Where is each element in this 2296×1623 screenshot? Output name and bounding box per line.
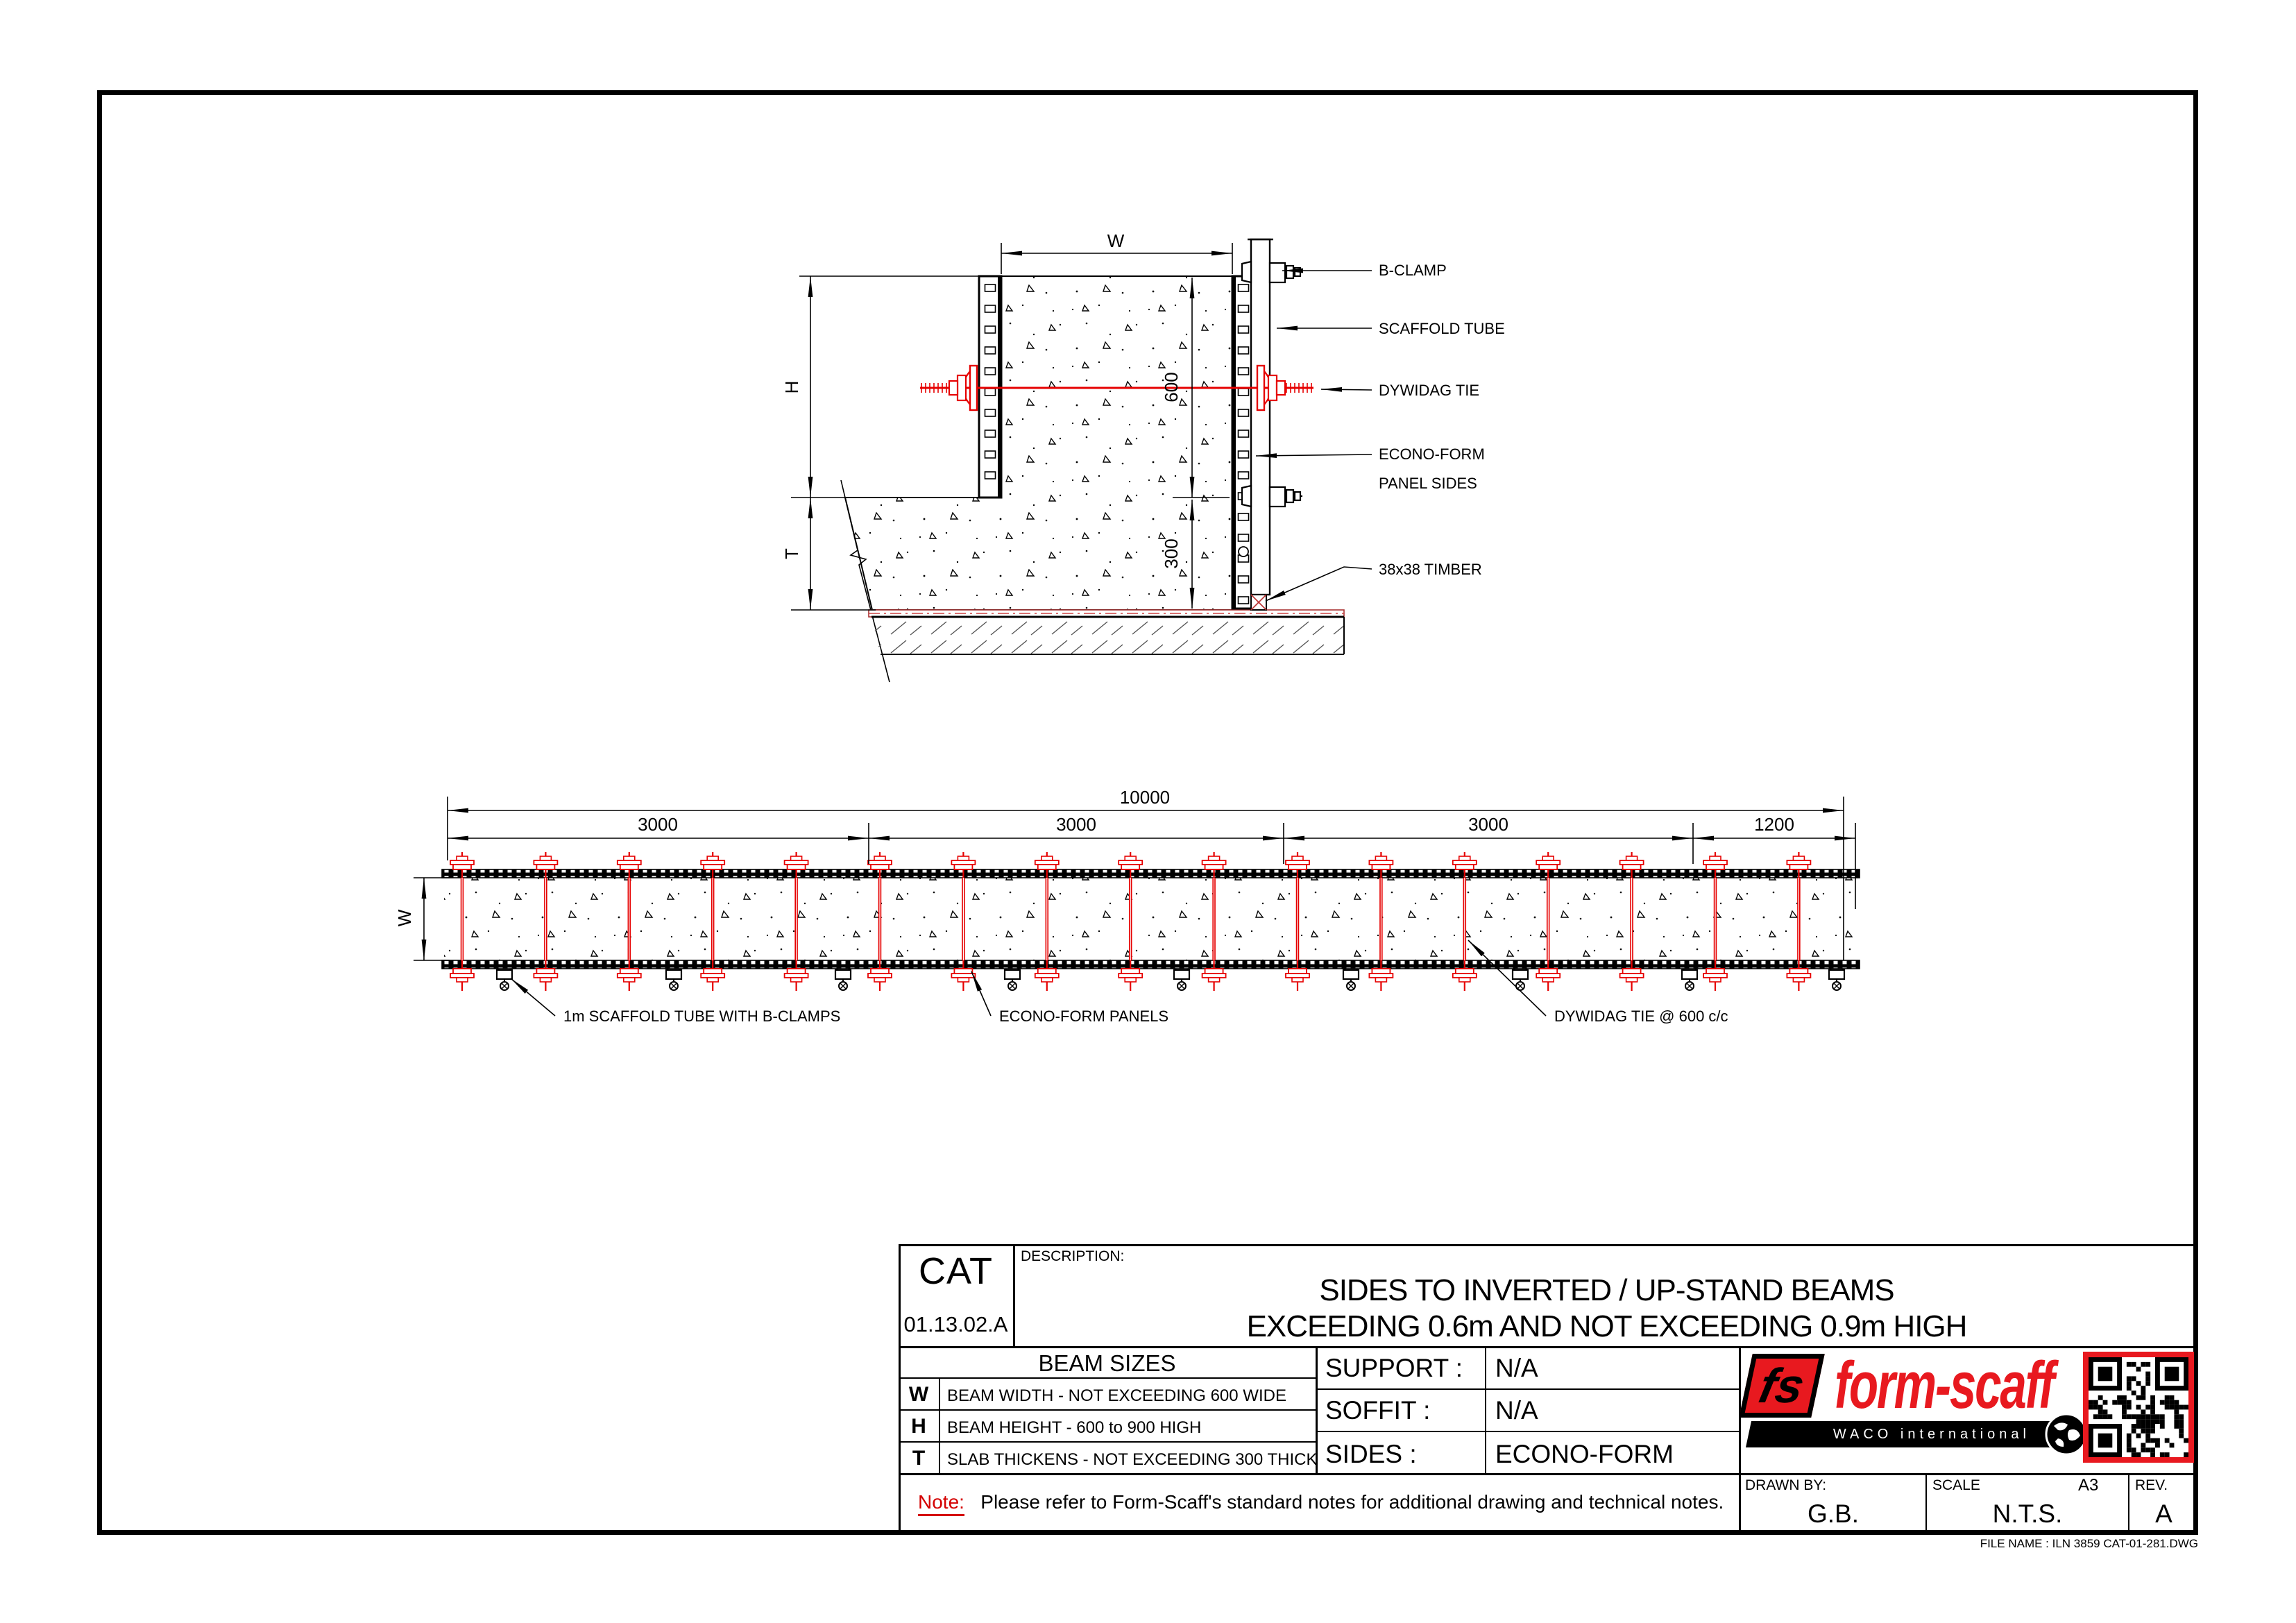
dim-t: T — [781, 548, 802, 559]
dim-w: W — [1107, 230, 1125, 251]
note-row: Note: Please refer to Form-Scaff's stand… — [918, 1491, 1724, 1513]
cat-label: CAT — [899, 1250, 1013, 1293]
beam-sizes-desc-w: BEAM WIDTH - NOT EXCEEDING 600 WIDE — [947, 1386, 1286, 1406]
file-name: FILE NAME : ILN 3859 CAT-01-281.DWG — [1873, 1537, 2198, 1551]
label-dywidag-tie: DYWIDAG TIE — [1379, 382, 1479, 399]
sheet-size: A3 — [2078, 1476, 2098, 1495]
description-line1: SIDES TO INVERTED / UP-STAND BEAMS — [1015, 1273, 2198, 1308]
dim-300: 300 — [1161, 538, 1182, 568]
qr-code — [2083, 1352, 2194, 1463]
dim-3000-3: 3000 — [1468, 814, 1508, 835]
description-label: DESCRIPTION: — [1021, 1248, 1124, 1265]
scale-label: SCALE — [1932, 1477, 1980, 1494]
dim-600: 600 — [1161, 372, 1182, 402]
ground-hatch — [871, 617, 1344, 654]
soffit-label: SOFFIT : — [1325, 1396, 1430, 1425]
dim-1200: 1200 — [1754, 814, 1794, 835]
note-text: Please refer to Form-Scaff's standard no… — [980, 1491, 1724, 1513]
monogram-text: fs — [1755, 1361, 1808, 1410]
plan-concrete — [444, 878, 1860, 960]
label-b-clamp: B-CLAMP — [1379, 262, 1447, 279]
b-clamp-bottom — [1242, 486, 1302, 507]
label-timber: 38x38 TIMBER — [1379, 561, 1482, 578]
label-plan-tie: DYWIDAG TIE @ 600 c/c — [1554, 1008, 1728, 1025]
label-plan-scaffold: 1m SCAFFOLD TUBE WITH B-CLAMPS — [563, 1008, 840, 1025]
cat-number: 01.13.02.A — [899, 1312, 1013, 1337]
support-value: N/A — [1495, 1354, 1538, 1383]
dim-10000: 10000 — [1120, 787, 1170, 808]
dim-3000-2: 3000 — [1056, 814, 1096, 835]
beam-sizes-desc-h: BEAM HEIGHT - 600 to 900 HIGH — [947, 1418, 1201, 1438]
dim-plan-w: W — [394, 909, 415, 926]
drawn-by-label: DRAWN BY: — [1745, 1477, 1826, 1494]
plan-b-clamps — [497, 969, 1844, 990]
rev-value: A — [2129, 1499, 2198, 1529]
beam-sizes-key-t: T — [899, 1447, 939, 1470]
b-clamp-top — [1242, 262, 1302, 282]
description-line2: EXCEEDING 0.6m AND NOT EXCEEDING 0.9m HI… — [1015, 1309, 2198, 1344]
label-plan-panels: ECONO-FORM PANELS — [999, 1008, 1168, 1025]
form-scaff-wordmark: form-scaff — [1835, 1348, 2075, 1424]
soffit-value: N/A — [1495, 1396, 1538, 1425]
dim-3000-1: 3000 — [638, 814, 678, 835]
note-label: Note: — [918, 1491, 964, 1516]
waco-banner: WACO international — [1746, 1421, 2076, 1447]
label-econoform-2: PANEL SIDES — [1379, 475, 1477, 492]
scaffold-tube — [1248, 239, 1273, 595]
beam-sizes-desc-t: SLAB THICKENS - NOT EXCEEDING 300 THICK — [947, 1450, 1317, 1470]
beam-sizes-key-w: W — [899, 1383, 939, 1407]
label-econoform-1: ECONO-FORM — [1379, 445, 1485, 463]
label-scaffold-tube: SCAFFOLD TUBE — [1379, 320, 1505, 337]
sides-label: SIDES : — [1325, 1440, 1417, 1469]
dim-h: H — [781, 381, 802, 394]
rev-label: REV. — [2135, 1477, 2168, 1494]
detail-leaders — [1256, 271, 1372, 601]
detail-view: W H T 600 300 B-CLAMP SCAFFOLD TUBE DYWI… — [781, 230, 1505, 682]
drawn-by-value: G.B. — [1741, 1499, 1925, 1529]
support-label: SUPPORT : — [1325, 1354, 1463, 1383]
globe-icon — [2044, 1412, 2089, 1456]
beam-sizes-key-h: H — [899, 1415, 939, 1438]
sides-value: ECONO-FORM — [1495, 1440, 1674, 1469]
form-scaff-monogram: fs — [1739, 1354, 1825, 1418]
scale-value: N.T.S. — [1927, 1499, 2128, 1529]
timber-38x38 — [1251, 595, 1266, 610]
beam-sizes-title: BEAM SIZES — [899, 1350, 1316, 1377]
waco-text: WACO international — [1833, 1427, 2030, 1443]
plan-view: 10000 3000 3000 3000 1200 W 1m SCAFFOLD … — [394, 787, 1860, 1025]
